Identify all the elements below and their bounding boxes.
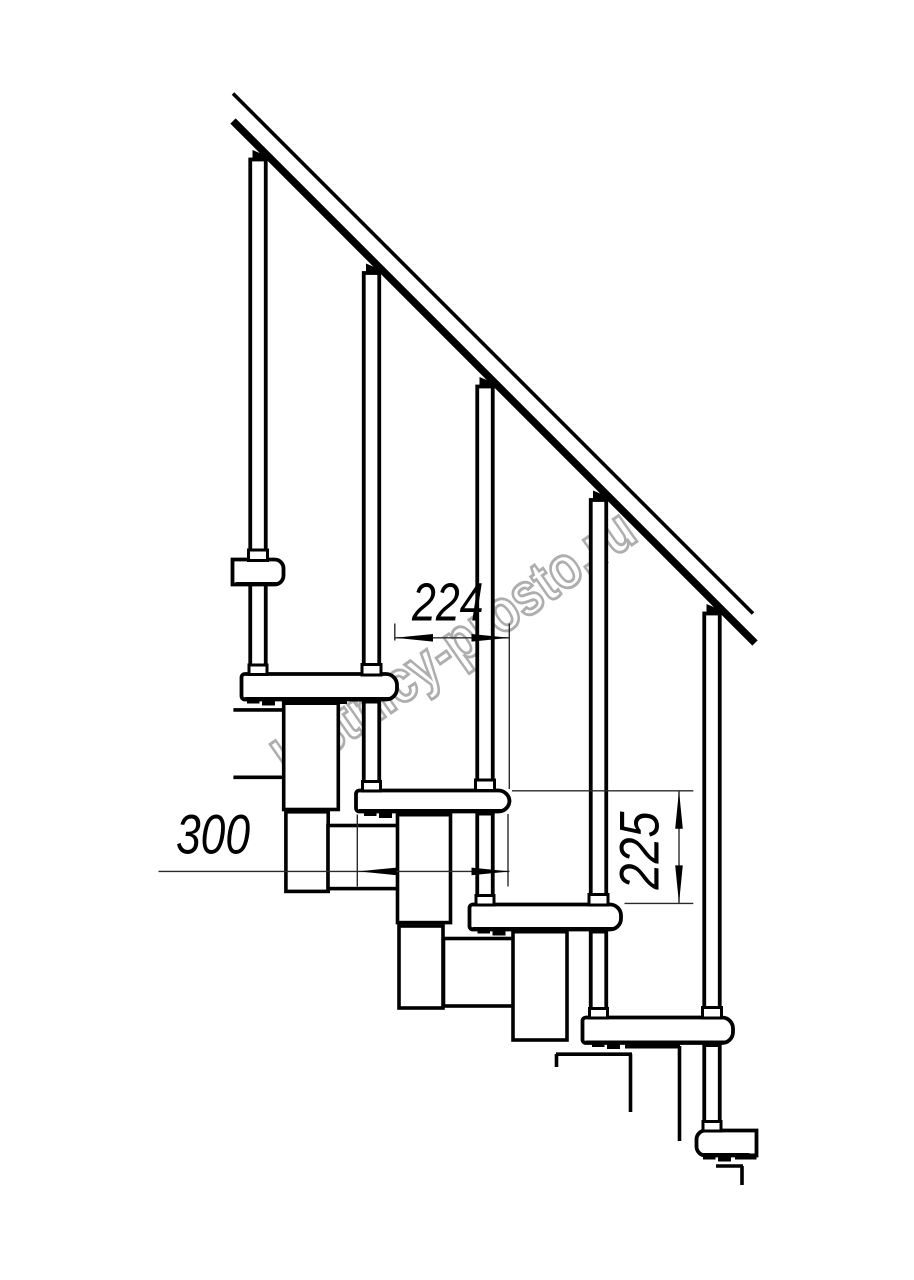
svg-text:224: 224	[411, 573, 483, 633]
svg-text:225: 225	[608, 811, 671, 891]
svg-text:300: 300	[176, 803, 250, 866]
